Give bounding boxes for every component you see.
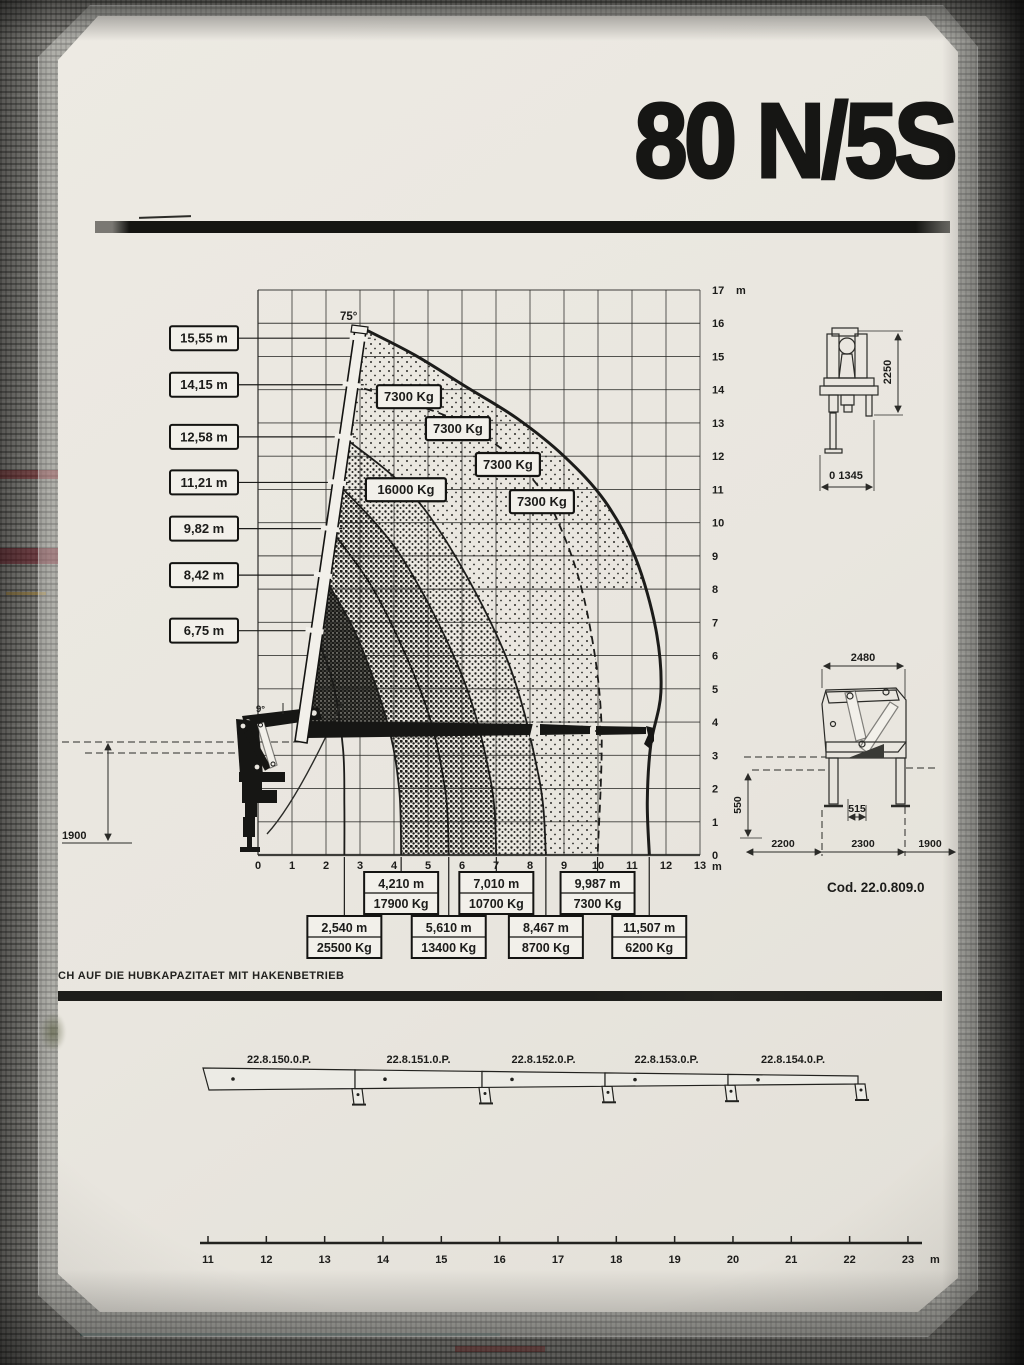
x-tick-label: 13 bbox=[694, 860, 706, 872]
y-tick-label: 15 bbox=[712, 351, 724, 363]
sv-550-dim-label: 550 bbox=[732, 796, 744, 814]
ruler-tick-label: 17 bbox=[552, 1254, 564, 1266]
boom-collar bbox=[314, 574, 332, 577]
y-tick-label: 2 bbox=[712, 784, 718, 796]
x-tick-label: 2 bbox=[323, 860, 329, 872]
outreach-value: 9,987 m bbox=[575, 877, 621, 891]
capacity-label: 7300 Kg bbox=[433, 421, 483, 436]
extension-bracket-hole bbox=[357, 1093, 360, 1096]
outreach-value: 4,210 m bbox=[378, 877, 424, 891]
sv-span-label-2200: 2200 bbox=[771, 838, 795, 850]
fv-center-stack bbox=[841, 395, 854, 405]
ruler-tick-label: 14 bbox=[377, 1254, 390, 1266]
ruler-tick-label: 23 bbox=[902, 1254, 914, 1266]
sv-span-label-2300: 2300 bbox=[851, 838, 875, 850]
sv-515-dim-label: 515 bbox=[848, 803, 866, 815]
extension-bracket bbox=[479, 1087, 491, 1103]
fv-height-dim-label: 2250 bbox=[882, 360, 894, 384]
fv-base-plate bbox=[820, 386, 878, 395]
extension-hole bbox=[383, 1077, 387, 1081]
hook-height-label: 9,82 m bbox=[184, 521, 224, 536]
ruler-tick-label: 21 bbox=[785, 1254, 797, 1266]
ruler-tick-label: 11 bbox=[202, 1254, 214, 1266]
hook-height-label: 6,75 m bbox=[184, 623, 224, 638]
stabilizer-jack bbox=[243, 817, 255, 837]
boom-collar bbox=[335, 436, 353, 439]
y-tick-label: 9 bbox=[712, 551, 718, 563]
fv-top-bracket bbox=[832, 328, 858, 336]
extension-hole bbox=[231, 1077, 235, 1081]
sv-right-leg bbox=[896, 758, 905, 804]
extension-section bbox=[203, 1068, 355, 1090]
code-label: Cod. 22.0.809.0 bbox=[827, 880, 925, 895]
fv-center-stack-2 bbox=[844, 405, 852, 412]
fv-left-cylinder bbox=[827, 334, 839, 378]
mast-pin bbox=[241, 724, 246, 729]
y-tick-label: 0 bbox=[712, 850, 718, 862]
x-tick-label: 6 bbox=[459, 860, 465, 872]
fv-left-jack bbox=[829, 395, 838, 412]
stabilizer-foot bbox=[240, 847, 260, 852]
load-value: 25500 Kg bbox=[317, 941, 372, 955]
stowed-crane-front-view: 2250 0 1345 bbox=[820, 328, 903, 491]
extension-part-number: 22.8.154.0.P. bbox=[761, 1054, 825, 1066]
hook-height-label: 14,15 m bbox=[180, 377, 228, 392]
load-value: 8700 Kg bbox=[522, 941, 570, 955]
extension-bracket-hole bbox=[730, 1090, 733, 1093]
y-tick-label: 7 bbox=[712, 617, 718, 629]
mast-pin-2 bbox=[255, 765, 260, 770]
extension-bracket-hole bbox=[860, 1089, 863, 1092]
outreach-value: 8,467 m bbox=[523, 921, 569, 935]
hook-height-label: 12,58 m bbox=[180, 429, 228, 444]
hook-height-label: 8,42 m bbox=[184, 568, 224, 583]
boom-collar bbox=[306, 629, 324, 632]
ground-height-dim-label: 1900 bbox=[62, 830, 86, 842]
ruler-tick-label: 15 bbox=[435, 1254, 447, 1266]
x-tick-label: 4 bbox=[391, 860, 398, 872]
horizontal-boom-section-3 bbox=[596, 726, 646, 735]
stabilizer-stem bbox=[245, 803, 257, 817]
hook-height-label: 15,55 m bbox=[180, 331, 228, 346]
extension-part-number: 22.8.152.0.P. bbox=[511, 1054, 575, 1066]
load-value: 6200 Kg bbox=[625, 941, 673, 955]
ruler-tick-label: 12 bbox=[260, 1254, 272, 1266]
y-tick-label: 6 bbox=[712, 651, 718, 663]
ruler-unit: m bbox=[930, 1254, 940, 1266]
boom-collar bbox=[343, 383, 361, 386]
fv-right-cylinder bbox=[855, 334, 867, 378]
fv-leg-rod bbox=[830, 413, 836, 449]
extension-bracket bbox=[602, 1086, 614, 1102]
ruler-tick-label: 18 bbox=[610, 1254, 622, 1266]
x-tick-label: 5 bbox=[425, 860, 431, 872]
y-tick-label: 4 bbox=[712, 717, 719, 729]
ruler-tick-label: 16 bbox=[494, 1254, 506, 1266]
fv-winch bbox=[839, 338, 855, 354]
stabilizer-rod bbox=[247, 837, 252, 847]
x-tick-label: 11 bbox=[626, 860, 638, 872]
extension-hole bbox=[510, 1078, 514, 1082]
fv-foot-pad bbox=[825, 449, 842, 453]
capacity-label: 7300 Kg bbox=[517, 494, 567, 509]
outreach-value: 11,507 m bbox=[623, 921, 675, 935]
sv-left-leg bbox=[829, 758, 838, 804]
x-tick-label: 12 bbox=[660, 860, 672, 872]
y-tick-label: 14 bbox=[712, 385, 725, 397]
boom-max-angle-label: 75° bbox=[340, 311, 358, 323]
fv-width-dim-label: 0 1345 bbox=[829, 470, 863, 482]
load-value: 7300 Kg bbox=[574, 897, 622, 911]
extension-hole bbox=[756, 1078, 760, 1082]
y-tick-label: 12 bbox=[712, 451, 724, 463]
sv-width-dim-label: 2480 bbox=[851, 652, 875, 664]
extension-part-number: 22.8.153.0.P. bbox=[634, 1054, 698, 1066]
y-tick-label: 8 bbox=[712, 584, 718, 596]
capacity-label: 16000 Kg bbox=[377, 482, 434, 497]
extension-length-ruler: 11121314151617181920212223m bbox=[200, 1236, 940, 1266]
extension-bracket bbox=[725, 1085, 737, 1101]
extension-bracket-hole bbox=[607, 1091, 610, 1094]
hook-height-label: 11,21 m bbox=[181, 475, 228, 490]
extension-bracket-hole bbox=[484, 1092, 487, 1095]
extension-sections-drawing: 22.8.150.0.P.22.8.151.0.P.22.8.152.0.P.2… bbox=[203, 1054, 869, 1105]
extension-bracket bbox=[855, 1084, 867, 1100]
extension-section bbox=[482, 1071, 605, 1087]
y-tick-label: 13 bbox=[712, 418, 724, 430]
load-value: 10700 Kg bbox=[469, 897, 524, 911]
outreach-load-callouts: 2,540 m25500 Kg4,210 m17900 Kg5,610 m134… bbox=[307, 857, 686, 958]
load-value: 17900 Kg bbox=[374, 897, 429, 911]
y-tick-label: 11 bbox=[712, 484, 724, 496]
stowed-crane-side-view: 2480 515 550 2200 2300 1900 Cod. 22.0.80… bbox=[732, 652, 955, 895]
ruler-tick-label: 13 bbox=[319, 1254, 331, 1266]
boom-collar-gap-2 bbox=[591, 724, 593, 737]
capacity-label: 7300 Kg bbox=[483, 457, 533, 472]
x-tick-label: 0 bbox=[255, 860, 261, 872]
y-tick-label: 10 bbox=[712, 518, 724, 530]
base-plate bbox=[239, 772, 285, 782]
ruler-tick-label: 19 bbox=[669, 1254, 681, 1266]
ruler-tick-label: 22 bbox=[844, 1254, 856, 1266]
y-tick-label: 16 bbox=[712, 318, 724, 330]
load-value: 13400 Kg bbox=[421, 941, 476, 955]
outreach-value: 5,610 m bbox=[426, 921, 472, 935]
fv-right-bracket bbox=[866, 395, 872, 416]
boom-collar bbox=[321, 527, 339, 530]
outreach-value: 2,540 m bbox=[321, 921, 367, 935]
y-tick-label: 3 bbox=[712, 750, 718, 762]
boom-collar bbox=[328, 481, 346, 484]
x-tick-label: 1 bbox=[289, 860, 295, 872]
capacity-label: 7300 Kg bbox=[384, 389, 434, 404]
ruler-tick-label: 20 bbox=[727, 1254, 739, 1266]
outreach-value: 7,010 m bbox=[473, 877, 519, 891]
y-tick-label: 17 bbox=[712, 285, 724, 297]
x-tick-label: 8 bbox=[527, 860, 533, 872]
boom-min-angle-label: 9° bbox=[256, 704, 265, 715]
base-block bbox=[242, 782, 277, 803]
y-axis-unit: m bbox=[736, 285, 746, 297]
extension-hole bbox=[633, 1078, 637, 1082]
extension-bracket bbox=[352, 1089, 364, 1105]
extension-section bbox=[605, 1073, 728, 1086]
fv-center-cone bbox=[839, 354, 855, 378]
sv-span-label-1900: 1900 bbox=[918, 838, 942, 850]
y-tick-label: 1 bbox=[712, 817, 718, 829]
x-axis-unit: m bbox=[712, 861, 722, 873]
photo-of-crane-load-chart: 80 N/5S CH AUF DIE HUBKAPAZITAET MIT HAK… bbox=[0, 0, 1024, 1365]
boom-collar bbox=[350, 337, 368, 340]
boom-tip-block bbox=[351, 325, 368, 334]
x-tick-label: 3 bbox=[357, 860, 363, 872]
technical-drawing-layer: 1900 9° bbox=[0, 0, 1024, 1365]
extension-section bbox=[355, 1070, 482, 1089]
extension-part-number: 22.8.150.0.P. bbox=[247, 1054, 311, 1066]
y-tick-label: 5 bbox=[712, 684, 718, 696]
fv-frame bbox=[824, 378, 874, 386]
x-tick-label: 9 bbox=[561, 860, 567, 872]
extension-part-number: 22.8.151.0.P. bbox=[386, 1054, 450, 1066]
extension-section bbox=[728, 1074, 858, 1085]
